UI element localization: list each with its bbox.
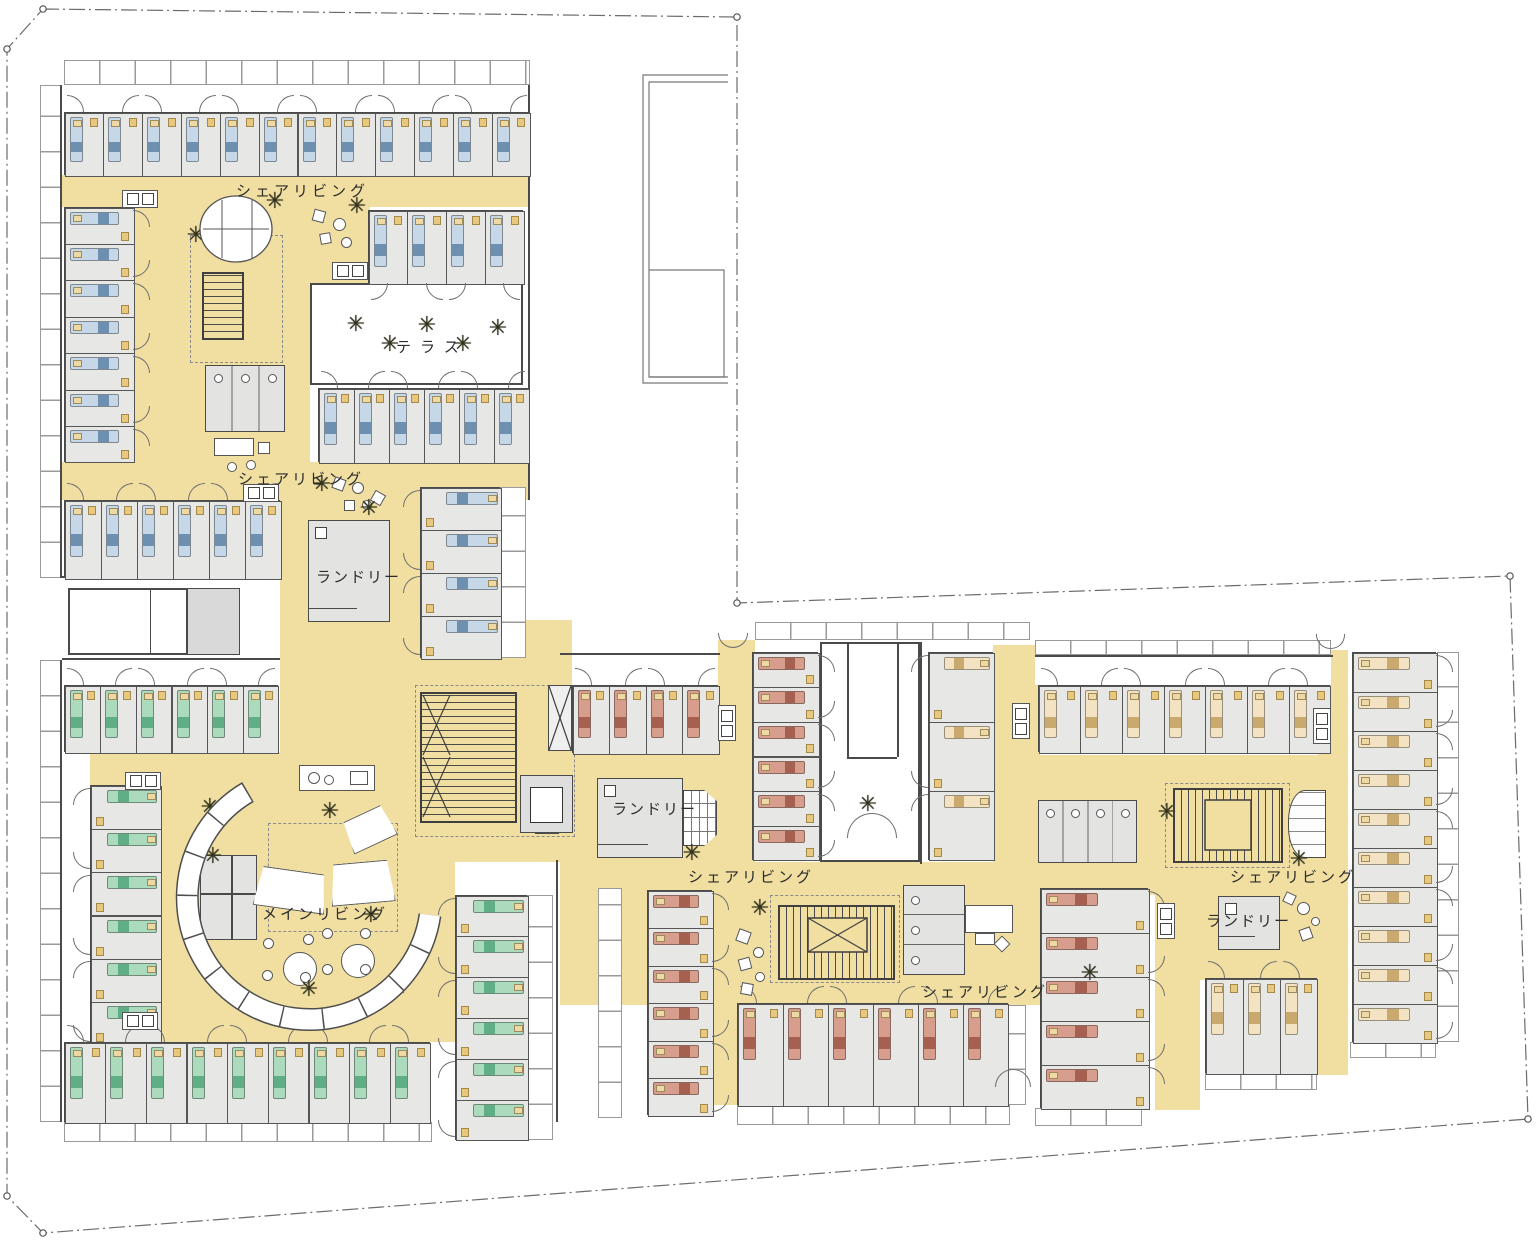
guest-room [421,488,502,532]
room-desk [87,691,95,700]
toilet-fixture [1096,809,1105,818]
room-desk [1136,921,1144,930]
bed-pillow [344,120,353,127]
toilet-fixture [1046,809,1055,818]
toilets-2 [903,885,965,975]
cabinet-divider [201,893,256,895]
room-desk [207,118,215,127]
bed-stripe [226,142,237,152]
bed-stripe [969,1037,980,1048]
rooms-east-top [1038,685,1330,752]
room-desk [905,1009,913,1018]
bed-pillow [228,120,237,127]
utility-unit [1313,708,1331,744]
balcony-strip [1035,640,1331,655]
bed-stripe [785,831,795,842]
bed [107,920,157,933]
bed-stripe [179,534,190,545]
bed-pillow [761,729,770,736]
bed [107,790,157,803]
guest-room [918,1004,964,1107]
room-desk [88,506,96,515]
shared-corridor [993,645,1040,862]
bed-stripe [71,534,82,545]
furniture-item [753,947,764,958]
bed [108,117,121,162]
balcony-strip [40,660,62,1122]
room-desk [96,947,104,956]
bed [473,1104,525,1117]
guest-room [220,113,260,177]
bed [394,393,407,445]
bed-stripe [98,358,109,369]
room-desk [1304,984,1312,993]
bed-pillow [1130,693,1139,700]
bed-stripe [109,142,120,152]
guest-room [375,113,415,177]
bed-pillow [746,1011,755,1018]
bed-pillow [1049,1072,1058,1079]
bed [341,117,354,162]
wall-segment [560,653,720,655]
stair-main [420,692,517,823]
wall-segment [1035,655,1333,657]
bed [446,620,498,633]
bed [1169,690,1182,738]
bed-stripe [148,142,159,152]
furniture-item [227,462,237,472]
furniture-item [328,859,395,906]
bed-pillow [73,251,82,258]
bed [70,117,83,162]
bed-pillow [656,1085,665,1092]
bed [1358,774,1410,787]
bed [653,932,700,945]
bed-stripe [744,1037,755,1048]
bed [107,963,157,976]
room-desk [461,965,469,974]
room-desk [92,1048,100,1057]
bed [186,117,199,162]
bed-stripe [1295,717,1306,728]
bed [1046,893,1098,906]
room-desk [133,1048,141,1057]
bed [1210,690,1223,738]
room-desk [472,216,480,225]
bed-stripe [233,1076,244,1087]
room-desk [1109,691,1117,700]
guest-room [1353,848,1438,888]
bed-pillow [690,693,699,700]
bed [451,215,464,267]
bed-stripe [413,244,424,255]
guest-room [753,722,820,758]
rooms-mid-west-col [752,652,818,860]
bed-pillow [147,966,156,973]
bed-pillow [488,537,497,544]
room-desk [196,506,204,515]
washer-icon [315,527,327,539]
bed-pillow [581,693,590,700]
bed-pillow [306,120,315,127]
room-desk [934,779,942,788]
guest-room [1353,965,1438,1005]
bed-pillow [514,984,523,991]
bed-stripe [71,142,82,152]
bed-pillow [217,508,226,515]
room-desk [268,506,276,515]
bed-pillow [73,397,82,404]
guest-room [738,1004,784,1107]
bed [232,1047,245,1099]
furniture-item [344,500,355,511]
guest-room [65,390,135,427]
guest-room [648,1003,714,1042]
room-desk [1192,691,1200,700]
sink-circle [324,775,334,785]
guest-room [407,211,447,285]
balcony-strip [1350,1042,1436,1058]
guest-room [65,244,135,281]
guest-room [456,1100,529,1142]
furniture-item [214,438,254,456]
guest-room [103,113,143,177]
bed [758,795,806,808]
guest-room [1041,889,1150,934]
bed-stripe [118,921,129,932]
guest-room [1353,887,1438,927]
utility-unit [122,1012,158,1030]
furniture-item [755,972,765,982]
room-desk [934,710,942,719]
bed-stripe [187,142,198,152]
bed-pillow [317,1050,326,1057]
room-desk [417,1048,425,1057]
bed [497,117,510,162]
bed-pillow [383,120,392,127]
bed-stripe [265,142,276,152]
guest-room [929,791,995,861]
door-arc [438,1038,455,1055]
bed [70,505,83,557]
guest-room [336,113,376,177]
room-desk [323,118,331,127]
bed [653,895,700,908]
bed-pillow [251,693,260,700]
room-desk [700,916,708,925]
bed-stripe [484,982,495,993]
room-desk [1424,914,1432,923]
room-desk [426,604,434,613]
rooms-east-col [1352,652,1436,1042]
room-desk [426,647,434,656]
bed-stripe [789,1037,800,1048]
tree-icon: ✳ [1081,963,1099,985]
door-arc [438,1120,455,1137]
room-desk [341,394,349,403]
zone-label-main-living: メインリビング [262,903,388,924]
bed-stripe [498,142,509,152]
room-desk [401,118,409,127]
guest-room [1353,809,1438,849]
guest-room [873,1004,919,1107]
room-desk [1424,758,1432,767]
guest-room [753,791,820,827]
bed-pillow [189,120,198,127]
entry-walkway [572,655,718,685]
bed-pillow [398,1050,407,1057]
bed [446,534,498,547]
rooms-nw-top [64,112,530,175]
bed [499,393,512,445]
service-cell [187,588,240,655]
bed-stripe [491,244,502,255]
bed [968,1008,981,1060]
toilet-fixture [268,374,277,383]
bed-pillow [488,623,497,630]
wall-segment [60,660,62,1122]
bed [1358,891,1410,904]
guest-room [91,829,162,873]
courtyard-notch-wall [847,642,849,757]
bed-stripe [381,142,392,152]
toilet-fixture [241,374,250,383]
bed-pillow [1361,972,1370,979]
bed-stripe [679,933,689,944]
room-desk [1424,836,1432,845]
guest-room [494,389,530,464]
bed-stripe [679,896,689,907]
bed-stripe [1249,1012,1260,1023]
washer-icon [604,785,616,797]
bed-pillow [253,508,262,515]
furniture-item [1297,902,1310,915]
guest-room [65,1043,107,1124]
bed-pillow [267,120,276,127]
kitchen-counter [299,765,375,791]
tree-icon: ✳ [321,801,339,823]
bed-pillow [656,973,665,980]
bed-stripe [1075,1026,1086,1037]
bed-stripe [465,422,476,433]
room-desk [295,1048,303,1057]
room-desk [1424,680,1432,689]
room-desk [426,518,434,527]
bed-pillow [454,218,463,225]
bed-pillow [150,120,159,127]
tree-icon: ✳ [360,498,378,520]
room-desk [230,691,238,700]
balcony-strip [64,60,530,85]
room-desk [426,561,434,570]
bed [314,1047,327,1099]
bed-pillow [109,508,118,515]
bed [70,1047,83,1099]
guest-room [65,353,135,390]
bed-pillow [432,396,441,403]
bed-stripe [304,142,315,152]
bed-pillow [488,580,497,587]
bed-pillow [926,1011,935,1018]
bed-stripe [1387,814,1398,825]
balcony-strip [755,622,1030,640]
guest-room [1041,1021,1150,1066]
bed-pillow [761,833,770,840]
guest-room [209,501,246,580]
rooms-sw-right [455,895,527,1140]
bed [250,505,263,557]
bed [1358,696,1410,709]
bed-pillow [502,396,511,403]
bed [1211,983,1224,1035]
furniture-item [263,938,274,949]
bed-stripe [484,941,495,952]
bed-stripe [1286,1012,1297,1023]
bed-stripe [484,901,495,912]
bed-pillow [73,360,82,367]
bed-stripe [193,1076,204,1087]
bed [178,505,191,557]
bed-pillow [73,1050,82,1057]
utility-unit [332,262,368,280]
bed [147,117,160,162]
guest-room [319,389,355,464]
bed [614,690,627,739]
bed [1285,983,1298,1035]
bed [1358,813,1410,826]
bed-pillow [147,923,156,930]
bed-pillow [235,1050,244,1057]
bed-pillow [881,1011,890,1018]
bed [248,690,261,738]
door-arc [438,1061,455,1078]
bed [446,577,498,590]
bed-pillow [656,1048,665,1055]
guest-room [389,389,425,464]
toilet-fixture [1071,809,1080,818]
room-desk [90,118,98,127]
bed-stripe [395,422,406,433]
room-desk [232,506,240,515]
room-desk [1317,691,1325,700]
guest-room [173,501,210,580]
guest-room [421,573,502,617]
room-desk [1151,691,1159,700]
guest-room [414,113,454,177]
bed [141,690,154,738]
guest-room [146,1043,188,1124]
bed-stripe [178,717,189,728]
bed [1046,937,1098,950]
bed [70,357,120,370]
bed [70,430,120,443]
bed [107,833,157,846]
bed-pillow [327,396,336,403]
room-desk [815,1009,823,1018]
room-desk [121,341,129,350]
rooms-sw-left [90,785,160,1045]
toilet-fixture [911,926,920,935]
bed-pillow [147,836,156,843]
bed-pillow [1361,660,1370,667]
room-desk [481,394,489,403]
bed [354,1047,367,1099]
guest-room [1205,686,1248,754]
guest-room [187,1043,229,1124]
room-desk [377,1048,385,1057]
guest-room [181,113,221,177]
bed-pillow [791,1011,800,1018]
bed-stripe [1387,736,1398,747]
bed [1358,735,1410,748]
guest-room [65,280,135,317]
guest-room [459,389,495,464]
zone-label-share-living-3: シェアリビング [688,866,814,887]
guest-room [137,501,174,580]
guest-room [1080,686,1123,754]
bed-pillow [514,1025,523,1032]
bed [105,690,118,738]
zone-label-share-living-2: シェアリビング [238,468,364,489]
room-desk [1424,797,1432,806]
bed [214,505,227,557]
bed-pillow [761,660,770,667]
furniture-item [303,934,314,945]
courtyard-notch-wall [847,757,897,759]
furniture-item [319,232,332,245]
bed-stripe [1212,1012,1223,1023]
furniture-item [258,442,270,454]
guest-room [1353,1004,1438,1044]
bed-stripe [1211,717,1222,728]
bed-pillow [488,495,497,502]
room-desk [411,394,419,403]
bed-stripe [1086,717,1097,728]
closet [548,685,572,751]
entrance-door-arc [1331,634,1346,649]
bed-stripe [430,422,441,433]
bed [944,657,991,670]
bed-stripe [679,1046,689,1057]
guest-room [1122,686,1165,754]
guest-room [421,616,502,660]
door-arc [73,875,90,892]
bed-pillow [514,903,523,910]
bed [107,876,157,889]
bed-pillow [1049,940,1058,947]
guest-room [453,113,493,177]
guest-room [1353,653,1438,693]
bed [212,690,225,738]
guest-room [207,686,244,754]
bed-stripe [396,1076,407,1087]
guest-room [929,653,995,723]
bed [324,393,337,445]
room-desk [770,1009,778,1018]
room-desk [121,378,129,387]
guest-room [424,389,460,464]
zone-label-laundry-1: ランドリー [316,566,401,587]
guest-room [682,686,720,755]
bed-stripe [142,717,153,728]
entrance-door-arc [1013,1069,1031,1087]
guest-room [609,686,647,755]
furniture-item [341,944,375,978]
door-arc [73,852,90,869]
door-arc [73,788,90,805]
room-desk [1136,1009,1144,1018]
bed-stripe [215,534,226,545]
